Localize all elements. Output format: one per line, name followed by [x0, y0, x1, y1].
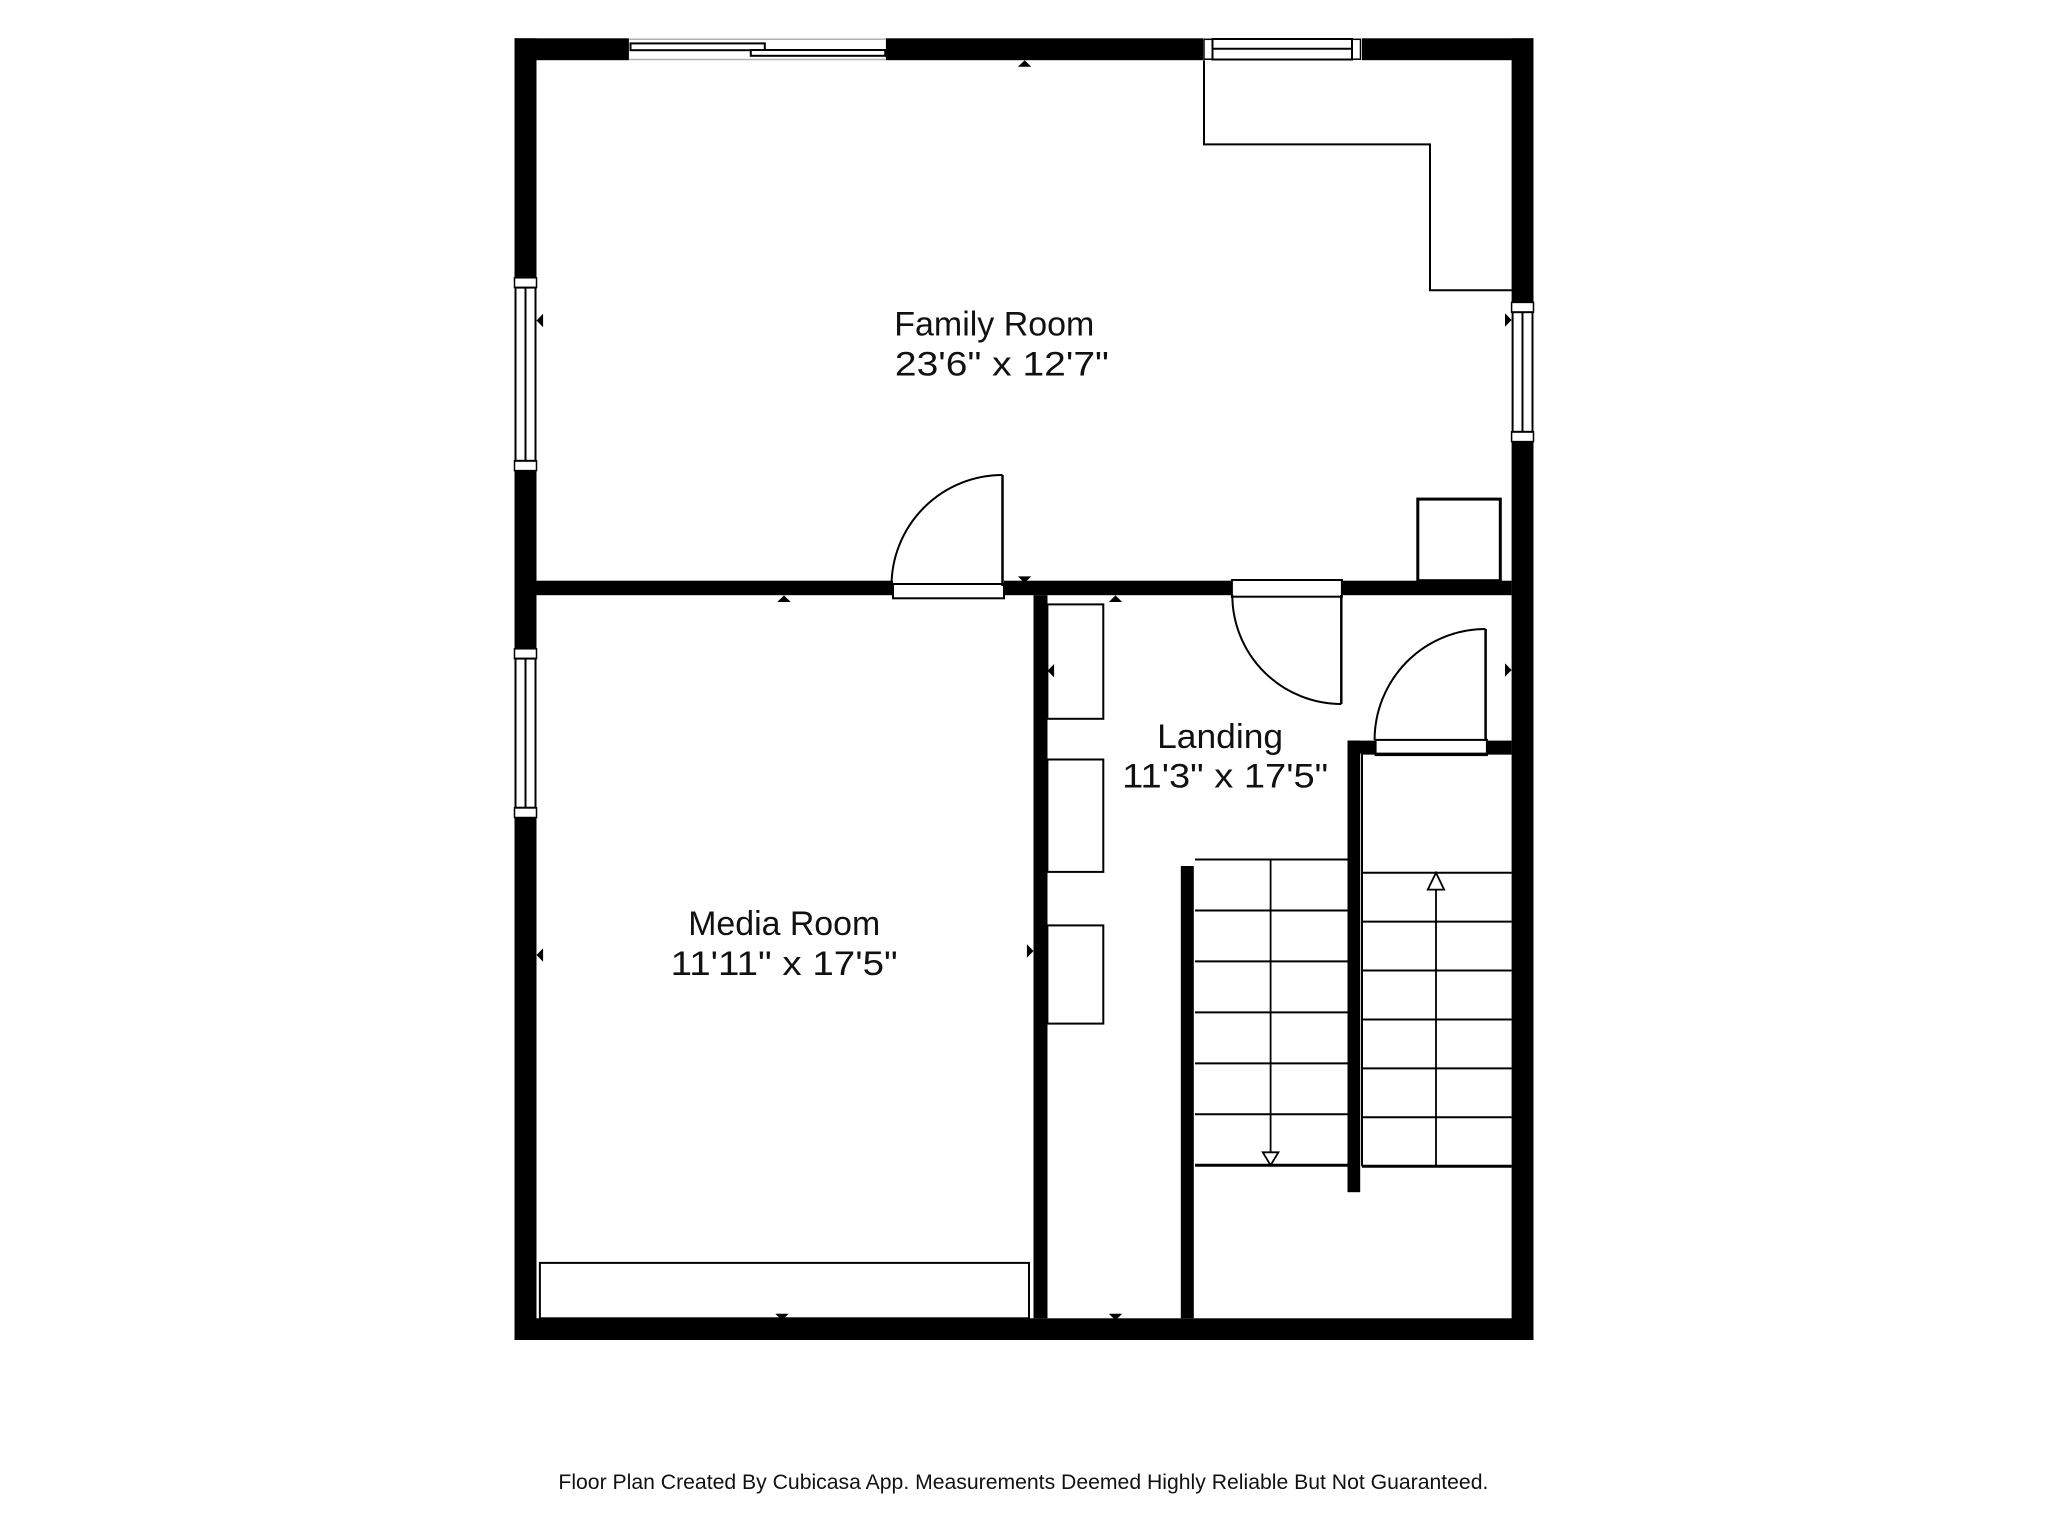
svg-text:23'6" x 12'7": 23'6" x 12'7" — [895, 346, 1109, 384]
svg-text:11'3" x 17'5": 11'3" x 17'5" — [1122, 757, 1328, 795]
svg-text:Family Room: Family Room — [894, 305, 1094, 343]
svg-text:11'11" x 17'5": 11'11" x 17'5" — [671, 945, 898, 983]
svg-text:Floor Plan Created By Cubicasa: Floor Plan Created By Cubicasa App. Meas… — [558, 1471, 1488, 1494]
svg-text:Landing: Landing — [1157, 718, 1283, 756]
svg-text:Media Room: Media Room — [688, 905, 880, 943]
